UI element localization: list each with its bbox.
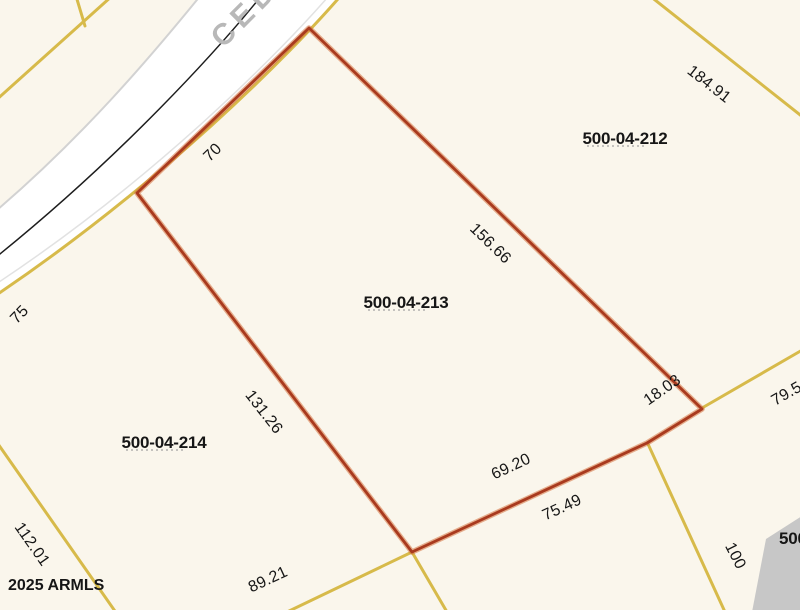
parcel-apn-label-500-04-213[interactable]: 500-04-213 xyxy=(364,293,449,312)
map-viewport[interactable]: CED 70156.66184.9175131.2618.0369.2075.4… xyxy=(0,0,800,610)
parcel-apn-label-500[interactable]: 500 xyxy=(779,529,800,548)
parcel-apn-label-500-04-214[interactable]: 500-04-214 xyxy=(122,433,208,452)
watermark-label: 2025 ARMLS xyxy=(8,577,105,594)
parcel-apn-label-500-04-212[interactable]: 500-04-212 xyxy=(583,129,668,148)
parcel-map[interactable]: CED 70156.66184.9175131.2618.0369.2075.4… xyxy=(0,0,800,610)
